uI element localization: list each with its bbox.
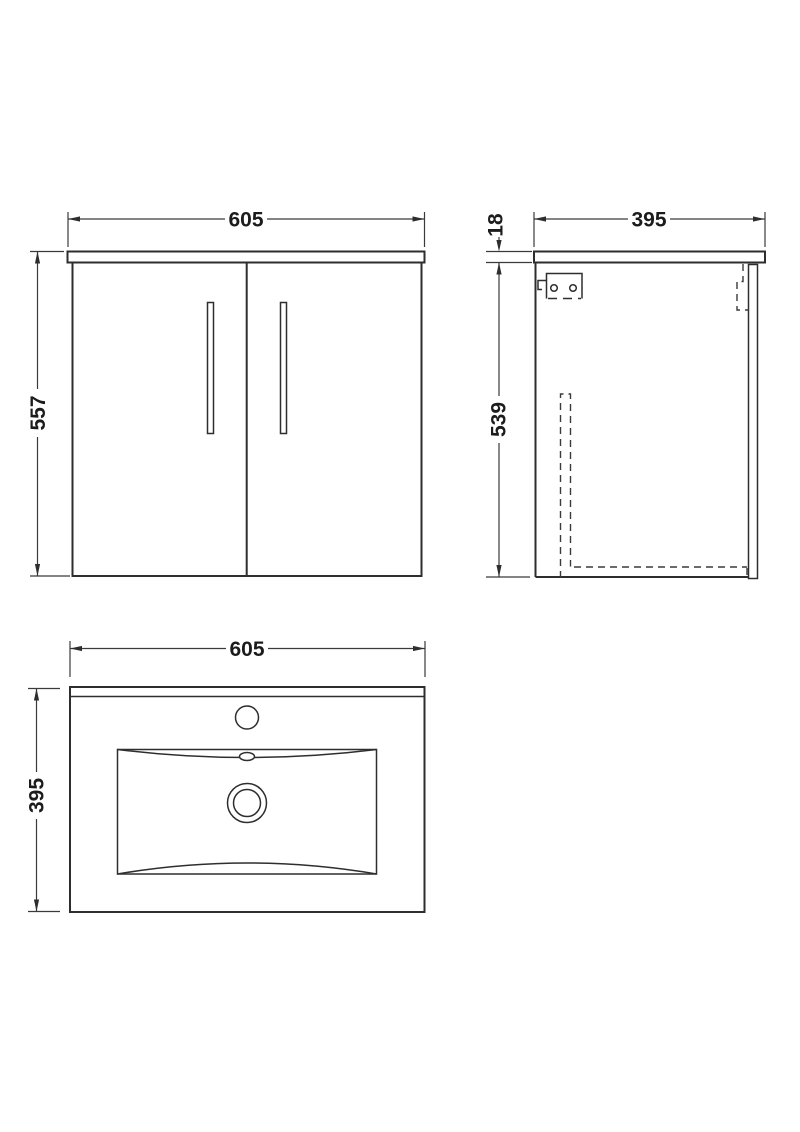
dimension-plan-width: 605 [70, 637, 425, 677]
bracket-screw-hole-left [551, 285, 558, 292]
front-elevation-view [68, 252, 425, 577]
hidden-front-bracket [737, 264, 749, 310]
bracket-screw-hole-right [570, 285, 577, 292]
side-elevation-view [534, 252, 765, 579]
front-worktop [68, 252, 425, 263]
dimension-worktop-thickness: 18 [485, 213, 533, 262]
arrowhead-left [534, 216, 546, 221]
arrowhead-down [34, 900, 39, 912]
dimension-label-worktop-thickness: 18 [485, 213, 508, 237]
front-right-door-handle [281, 303, 287, 434]
dimension-plan-depth: 395 [25, 689, 60, 912]
arrowhead-up [34, 689, 39, 701]
side-door-panel [749, 265, 758, 579]
arrowhead-up [35, 252, 40, 264]
dimension-label-front-width: 605 [228, 209, 263, 232]
dimension-cabinet-height: 539 [486, 263, 530, 578]
arrowhead-down [35, 564, 40, 576]
dimension-label-plan-width: 605 [229, 638, 264, 661]
tap-hole [236, 706, 259, 729]
dimension-label-cabinet-height: 539 [488, 402, 511, 437]
arrowhead-right [753, 216, 765, 221]
dimension-front-height: 557 [26, 252, 70, 577]
arrowhead-left [68, 216, 80, 221]
arrowhead-down [496, 565, 501, 577]
dimension-label-plan-depth: 395 [26, 778, 49, 813]
arrowhead-up [496, 263, 501, 275]
dimension-front-width: 605 [68, 208, 425, 248]
overflow-hole [240, 753, 255, 761]
vanity-unit-drawing: 605 557 [0, 0, 800, 1132]
front-left-door-handle [208, 303, 214, 434]
dimension-label-front-height: 557 [27, 395, 50, 430]
basin-plan-view [70, 687, 425, 912]
technical-drawing-page: 605 557 [0, 0, 800, 1132]
side-worktop [534, 252, 765, 263]
arrowhead-right [413, 646, 425, 651]
arrowhead-left [70, 646, 82, 651]
hidden-back-panel-edge [561, 394, 571, 578]
dimension-label-side-depth: 395 [631, 209, 666, 232]
dimension-side-depth: 395 [534, 208, 765, 248]
arrowhead-down [496, 240, 501, 252]
wall-bracket [538, 274, 582, 299]
arrowhead-right [413, 216, 425, 221]
bracket-wall-hook [538, 281, 547, 290]
